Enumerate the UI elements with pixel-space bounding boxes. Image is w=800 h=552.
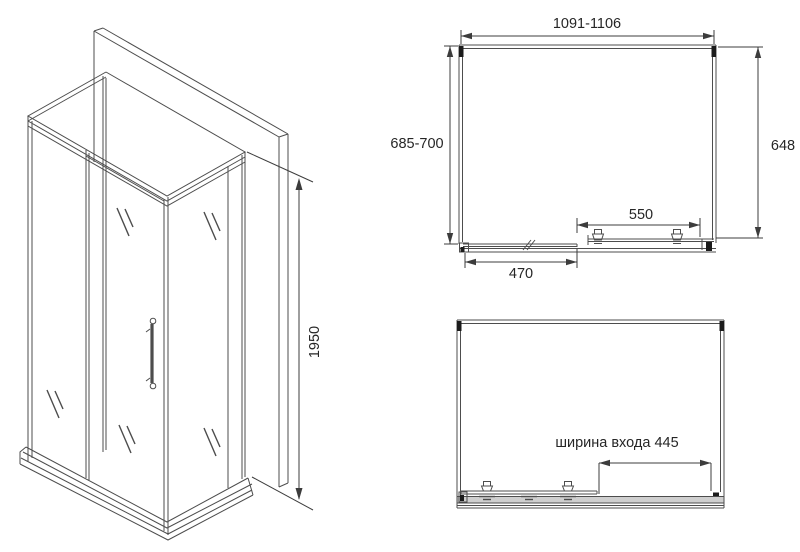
technical-drawing-canvas: 1950 xyxy=(0,0,800,552)
left-depth-dimension-label: 685-700 xyxy=(390,136,443,152)
left-depth-dimension xyxy=(444,46,458,244)
right-depth-dimension xyxy=(716,47,763,238)
door-handle xyxy=(146,318,156,389)
door-width-dimension-label: 550 xyxy=(629,207,653,223)
fixed-panel-dimension-label: 470 xyxy=(509,266,533,282)
drawing-svg: 1950 xyxy=(0,0,800,552)
entrance-plan-walls xyxy=(457,320,724,506)
top-view-walls xyxy=(459,45,716,244)
entrance-width-dimension xyxy=(599,460,711,494)
back-wall-panel xyxy=(94,28,288,487)
width-dimension-label: 1091-1106 xyxy=(553,16,621,32)
entrance-width-dimension-label: ширина входа 445 xyxy=(555,435,678,451)
entrance-plan-view: ширина входа 445 xyxy=(457,320,724,508)
height-dimension-label: 1950 xyxy=(307,326,323,358)
right-depth-dimension-label: 648 xyxy=(771,138,795,154)
base-frame xyxy=(20,447,253,540)
glass-reflection-marks xyxy=(47,208,220,456)
entrance-plan-rail xyxy=(457,497,724,509)
top-frame xyxy=(28,72,245,206)
isometric-view: 1950 xyxy=(20,28,323,540)
width-dimension xyxy=(461,30,714,44)
height-dimension xyxy=(247,152,313,510)
top-view-plan: 1091-1106 685-700 648 550 xyxy=(390,16,795,282)
